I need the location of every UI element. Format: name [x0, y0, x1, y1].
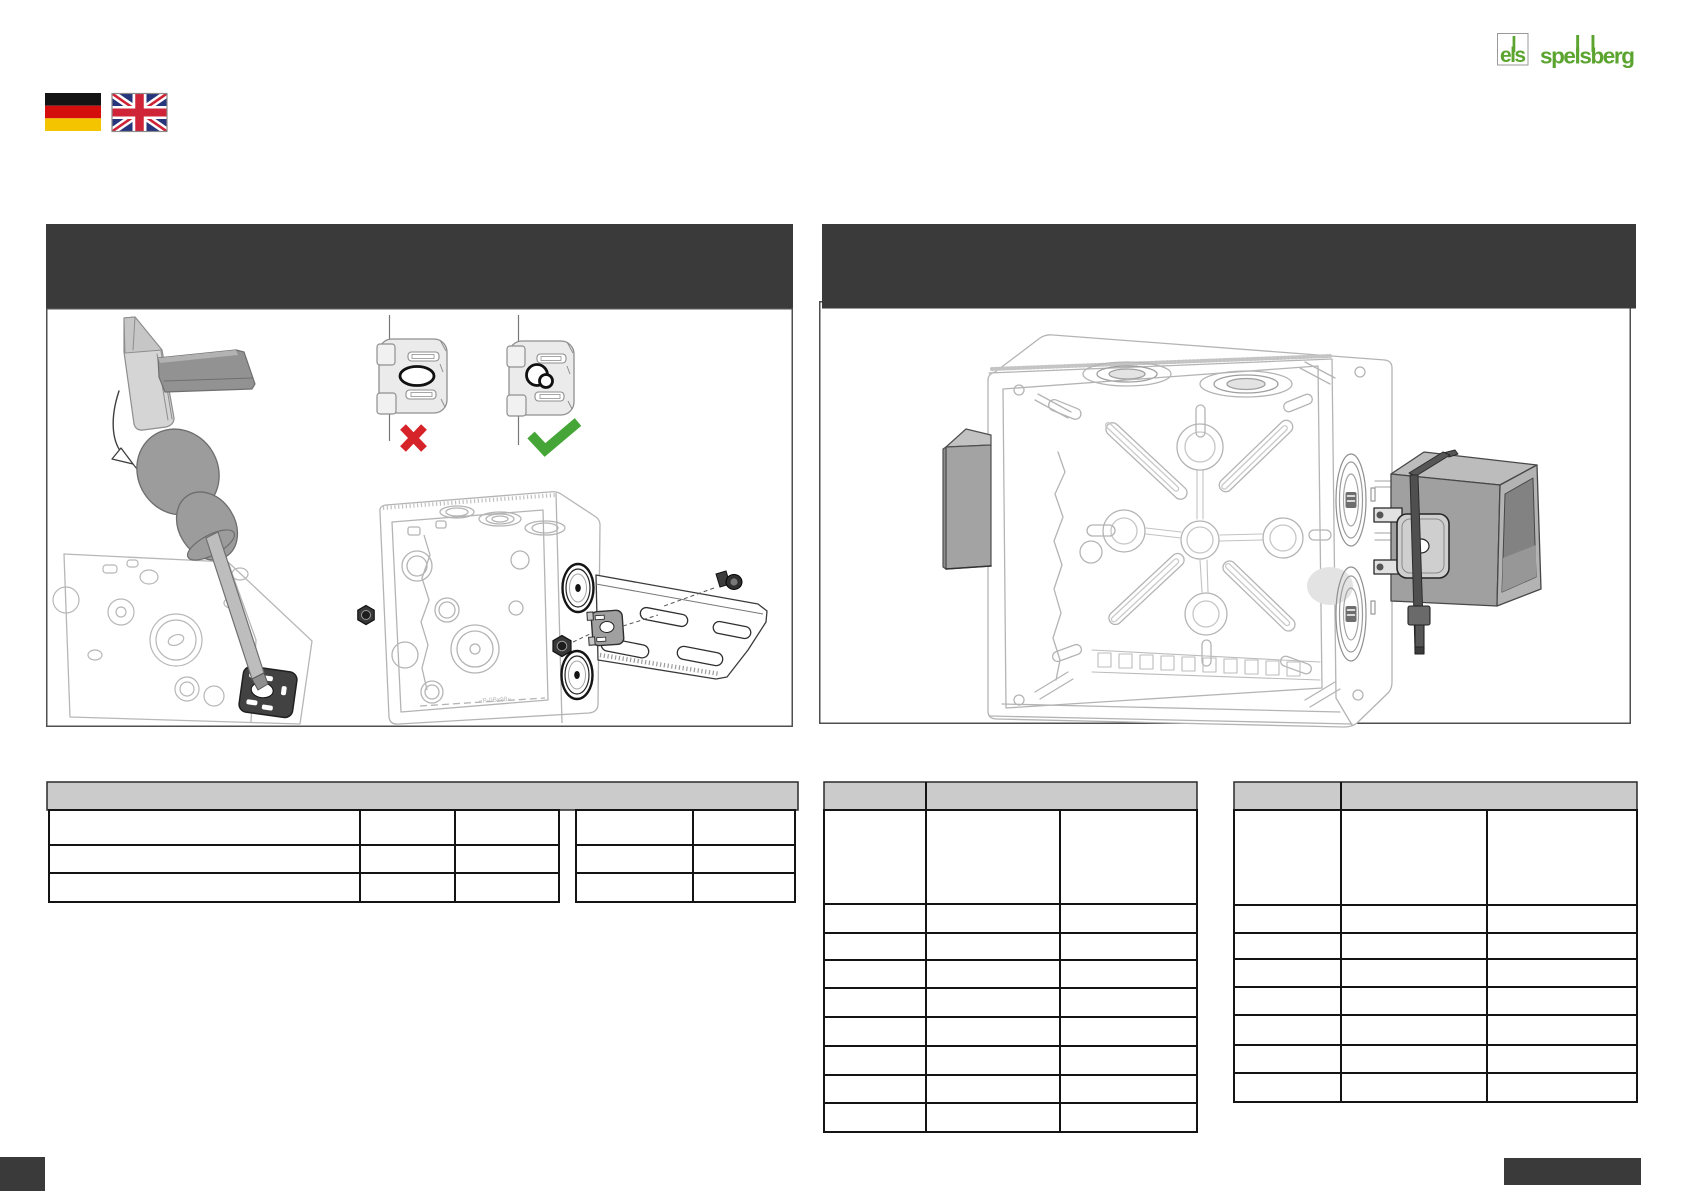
- svg-text:spelsberg: spelsberg: [1540, 44, 1635, 69]
